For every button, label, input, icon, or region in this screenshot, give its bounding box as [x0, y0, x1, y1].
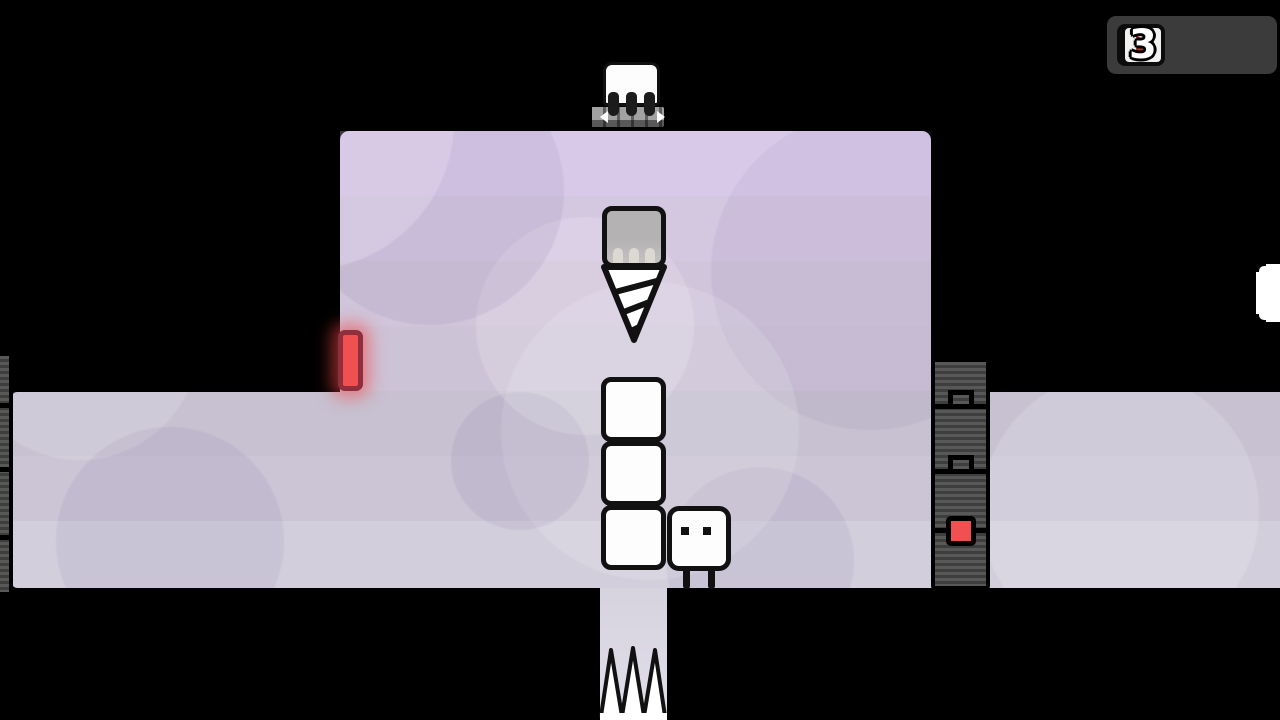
right-wall-track: [931, 358, 990, 590]
hud-counter: 3: [1129, 16, 1157, 74]
track-arrow-left-icon: [600, 111, 608, 123]
game-stage[interactable]: 3: [0, 0, 1280, 720]
carrier-prong: [626, 92, 637, 116]
drill-vent: [613, 248, 623, 263]
left-wall-track: [0, 356, 13, 592]
carrier-prong: [644, 92, 655, 116]
drill-vent: [645, 248, 655, 263]
drill-cone-icon: [600, 264, 668, 344]
offscreen-box-right: [1256, 264, 1280, 322]
stacked-box: [601, 441, 666, 506]
track-notch: [0, 403, 9, 408]
exit-door: [338, 330, 363, 391]
stacked-box: [601, 505, 666, 570]
drill-vent: [629, 248, 639, 263]
player-character: [667, 506, 731, 571]
character-eye: [703, 527, 711, 535]
box-corner-mark: [1255, 262, 1266, 272]
track-arrow-right-icon: [657, 111, 665, 123]
track-notch: [0, 467, 9, 472]
stacked-box: [601, 377, 666, 442]
track-notch: [935, 404, 986, 409]
carrier-prong: [608, 92, 619, 116]
character-eye: [681, 527, 689, 535]
track-notch: [935, 469, 986, 474]
track-notch: [0, 535, 9, 540]
box-corner-mark: [1255, 314, 1266, 324]
floor-spikes-icon: [598, 644, 669, 720]
track-red-button: [946, 516, 976, 546]
hud-panel: 3: [1107, 16, 1277, 74]
drill-block: [602, 206, 666, 268]
track-notch: [974, 528, 986, 533]
